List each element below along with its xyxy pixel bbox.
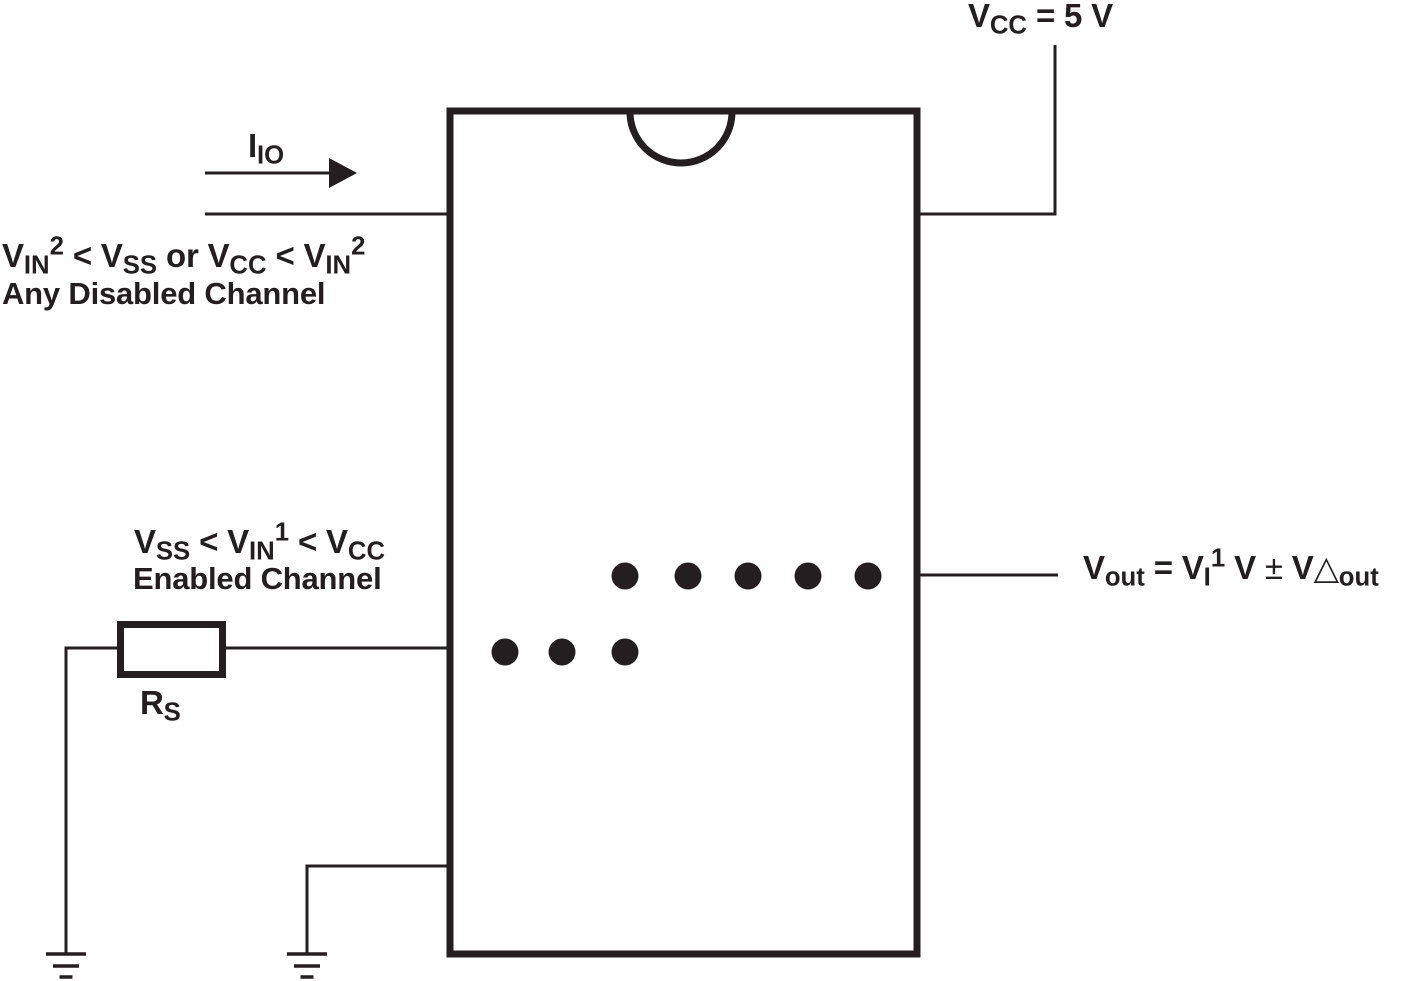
dot [549,639,576,666]
vss-bottom-wire [307,866,451,953]
dot [612,563,639,590]
io-current-arrowhead [329,158,357,188]
dot [795,563,822,590]
disabled-channel-caption: Any Disabled Channel [2,278,325,309]
powered-off-protection-test-circuit: VCC = 5 V IIO VIN2 < VSS or VCC < VIN2 A… [0,0,1401,981]
enabled-channel-caption: Enabled Channel [133,563,381,594]
dot [675,563,702,590]
ic-body [450,111,917,954]
dot [612,639,639,666]
resistor-rs-body [121,625,223,675]
dot [492,639,519,666]
circuit-drawing [0,0,1401,981]
enabled-channel-condition: VSS < VIN1 < VCC [134,525,385,558]
vcc-supply-wire [916,45,1055,214]
ellipsis-dots-lower [492,639,639,666]
io-current-label: IIO [248,129,284,162]
vcc-supply-label: VCC = 5 V [968,0,1113,32]
ground-symbol-left [46,954,86,977]
enabled-input-ground-riser [66,648,120,953]
dot [855,563,882,590]
dot [735,563,762,590]
output-voltage-label: Vout = VI1 V ± V△out [1083,551,1379,584]
disabled-channel-condition: VIN2 < VSS or VCC < VIN2 [2,239,365,272]
resistor-rs-label: RS [140,686,181,719]
ground-symbol-center [287,954,327,977]
